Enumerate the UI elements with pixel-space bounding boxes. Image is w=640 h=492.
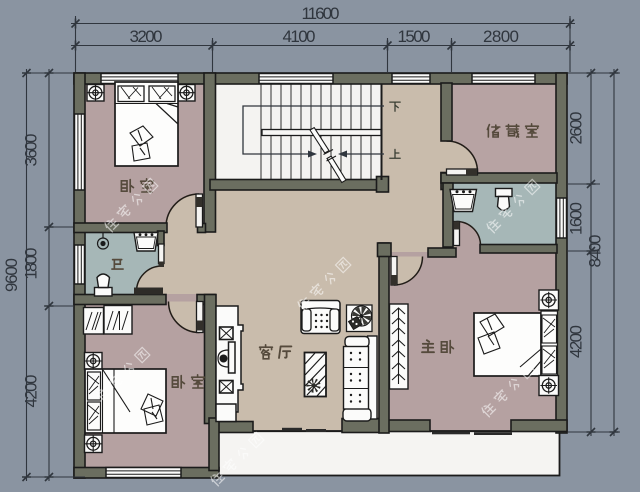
svg-text:1800: 1800 [22,248,41,280]
svg-text:2800: 2800 [483,27,519,46]
svg-text:4100: 4100 [283,27,316,46]
svg-text:3600: 3600 [22,134,41,167]
svg-text:4200: 4200 [567,325,586,358]
svg-text:2600: 2600 [567,112,586,145]
svg-text:11600: 11600 [302,4,340,23]
svg-text:4200: 4200 [22,375,41,408]
svg-text:9600: 9600 [2,258,21,292]
svg-text:1600: 1600 [567,202,586,235]
svg-text:3200: 3200 [130,27,163,46]
svg-text:1500: 1500 [398,27,431,46]
svg-text:8400: 8400 [586,235,605,268]
